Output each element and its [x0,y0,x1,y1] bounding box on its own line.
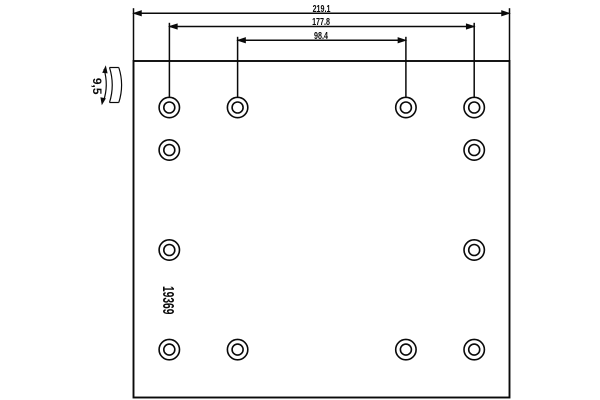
svg-text:19369: 19369 [159,286,177,314]
svg-text:98.4: 98.4 [314,30,328,42]
svg-text:177.8: 177.8 [312,16,330,28]
svg-text:9,5: 9,5 [90,78,104,95]
svg-text:219.1: 219.1 [313,2,331,14]
